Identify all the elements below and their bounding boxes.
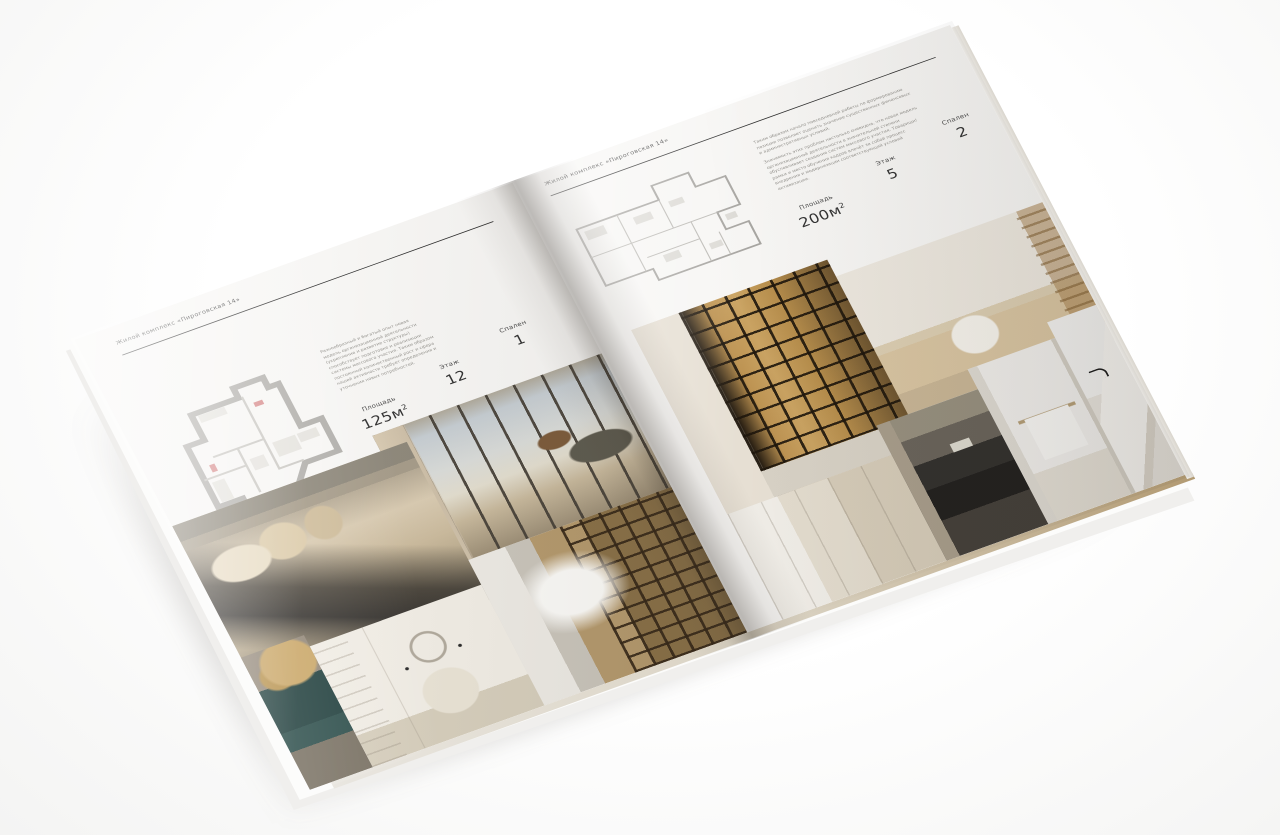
stat-area-right: Площадь 200м2 [778,186,864,236]
stat-bedrooms-right: Спален 2 [926,105,994,149]
stat-bedrooms-left: Спален 1 [483,313,551,357]
bathroom-faucet [1088,367,1109,383]
page-header-left: Жилой комплекс «Пироговская 14» [115,296,242,346]
magazine-spread: Жилой комплекс «Пироговская 14» [75,25,1185,790]
header-rule-left [122,221,493,355]
photo-backdrop: Жилой комплекс «Пироговская 14» [0,0,1280,835]
